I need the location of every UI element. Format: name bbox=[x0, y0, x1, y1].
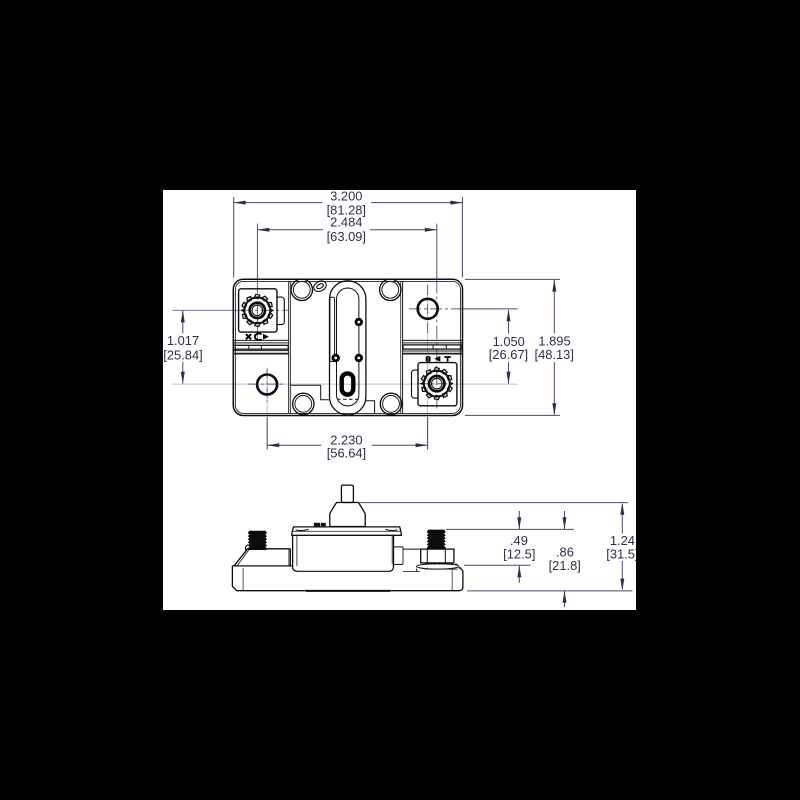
svg-text:.86: .86 bbox=[556, 544, 574, 559]
svg-text:[48.13]: [48.13] bbox=[534, 347, 573, 362]
svg-text:[63.09]: [63.09] bbox=[327, 229, 366, 244]
svg-text:2.484: 2.484 bbox=[330, 215, 362, 230]
svg-text:[26.67]: [26.67] bbox=[489, 347, 528, 362]
svg-text:3.200: 3.200 bbox=[330, 188, 362, 203]
svg-text:[31.5]: [31.5] bbox=[606, 546, 638, 561]
svg-text:[12.5]: [12.5] bbox=[503, 546, 535, 561]
svg-text:1.017: 1.017 bbox=[167, 333, 199, 348]
svg-text:[21.8]: [21.8] bbox=[549, 558, 581, 573]
svg-text:[56.64]: [56.64] bbox=[327, 445, 366, 460]
svg-text:[25.84]: [25.84] bbox=[163, 347, 202, 362]
